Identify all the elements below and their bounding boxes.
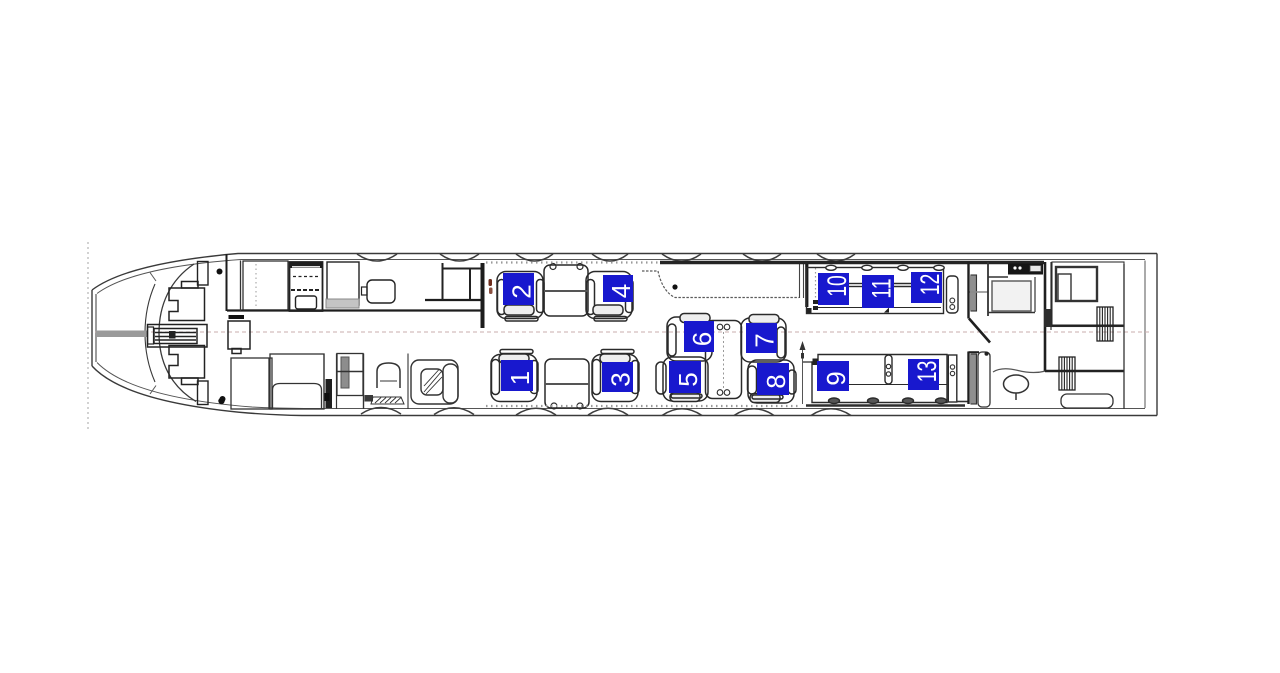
svg-text:10: 10 [822,275,852,297]
svg-text:4: 4 [606,284,636,298]
svg-text:5: 5 [673,372,703,386]
svg-text:11: 11 [866,278,896,298]
svg-text:12: 12 [915,274,945,296]
svg-text:9: 9 [821,371,851,385]
svg-text:8: 8 [761,374,791,388]
svg-text:13: 13 [912,361,942,383]
svg-text:1: 1 [505,371,535,385]
svg-text:7: 7 [750,333,780,347]
svg-text:3: 3 [606,372,636,386]
svg-text:6: 6 [687,332,717,346]
svg-text:2: 2 [507,284,537,298]
